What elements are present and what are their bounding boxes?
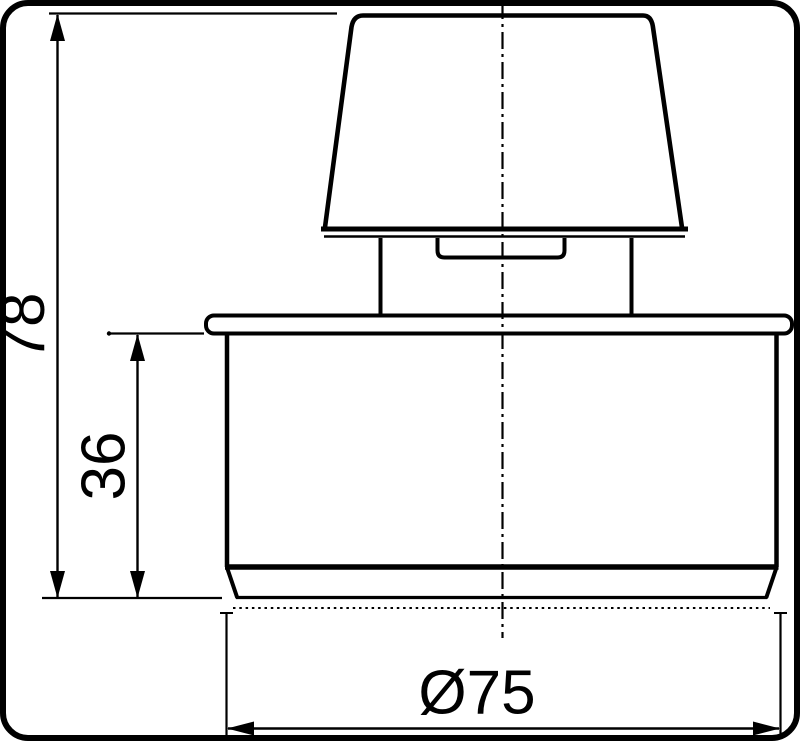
drawing-frame — [3, 3, 797, 738]
rim-left-taper — [228, 569, 238, 597]
dimension-diameter: Ø75 — [220, 612, 787, 737]
arrowhead-right-icon — [753, 722, 780, 736]
dimension-label-total-height: 78 — [0, 293, 58, 362]
arrowhead-down-icon — [130, 571, 145, 598]
arrowhead-down-icon — [50, 571, 65, 598]
technical-drawing: 78 36 Ø75 — [0, 0, 800, 741]
drawing-canvas: 78 36 Ø75 — [0, 0, 800, 741]
rim-right-taper — [767, 569, 777, 597]
arrowhead-left-icon — [227, 722, 254, 736]
flange-plate — [206, 316, 792, 334]
cap-center-plug — [438, 238, 565, 258]
dimension-label-body-height: 36 — [70, 432, 139, 501]
dimension-label-diameter: Ø75 — [418, 659, 535, 728]
extension-line-end-dot — [107, 331, 111, 335]
arrowhead-up-icon — [50, 14, 65, 41]
dimension-body-height: 36 — [70, 331, 205, 598]
arrowhead-up-icon — [130, 334, 145, 361]
stem — [381, 238, 632, 316]
dimension-total-height: 78 — [0, 14, 337, 599]
cap-outline — [321, 16, 688, 258]
